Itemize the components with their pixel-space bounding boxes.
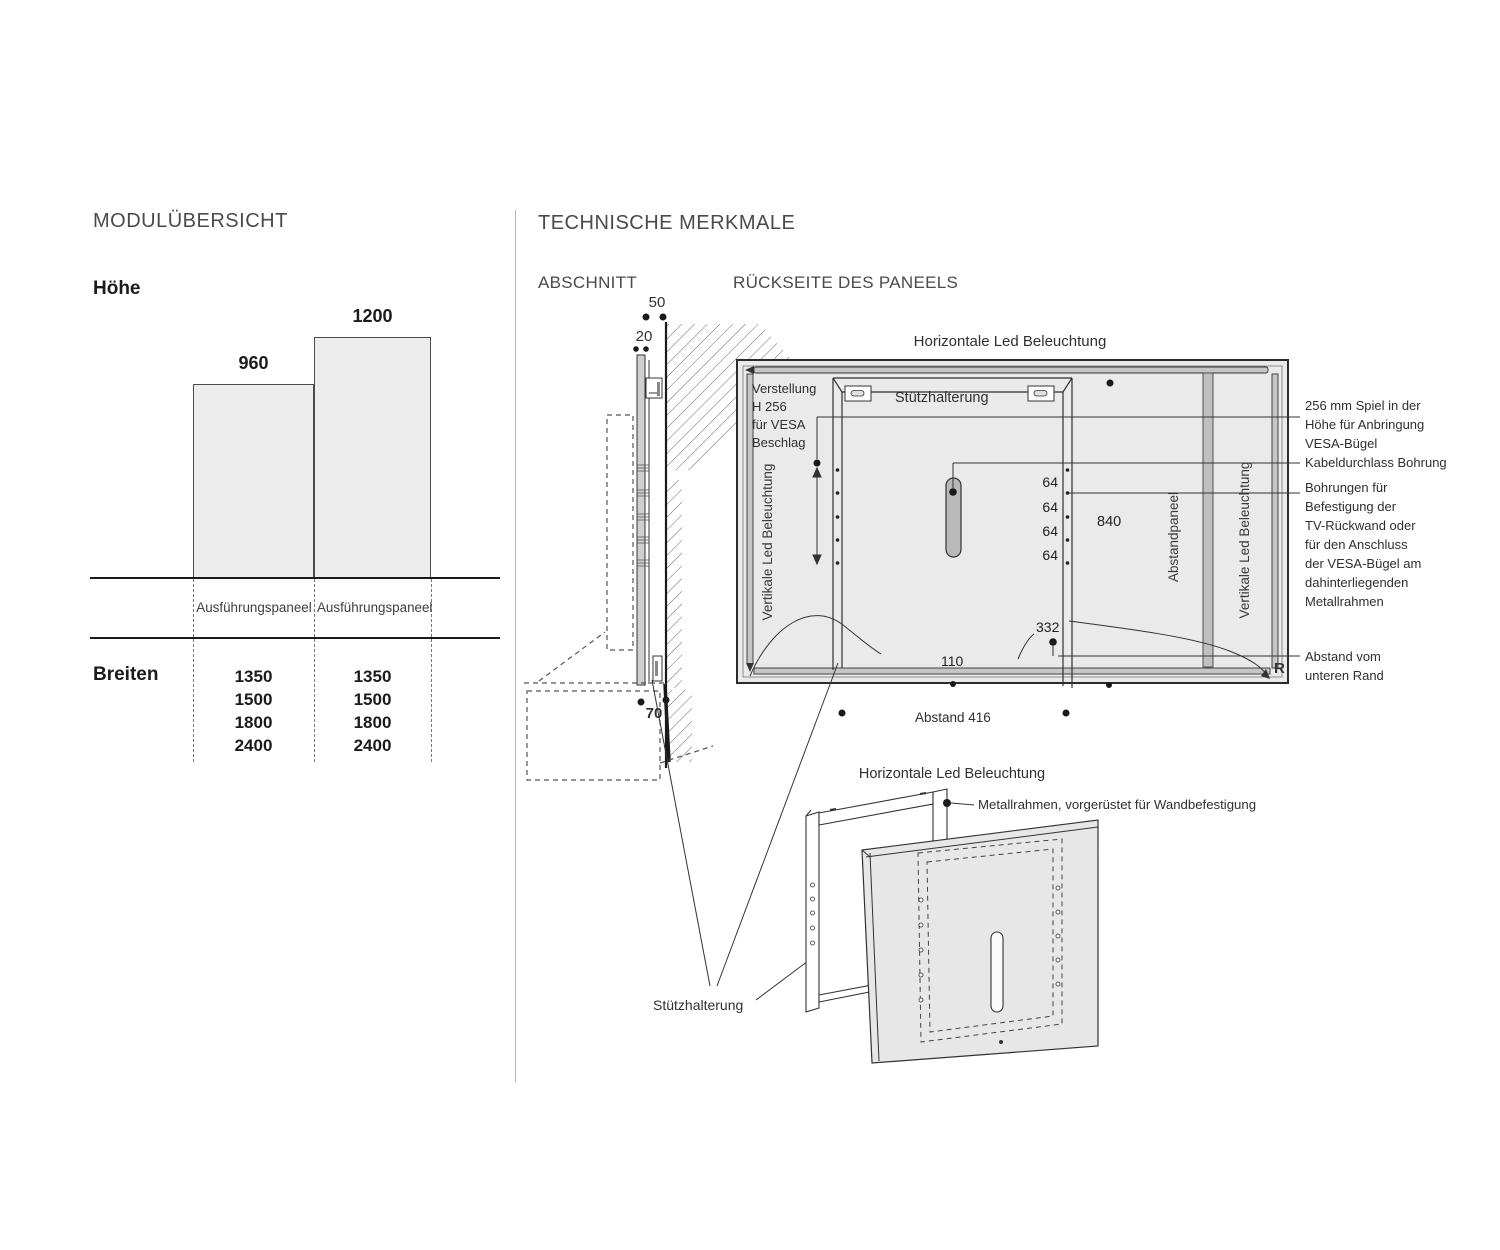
page: MODULÜBERSICHT Höhe 960 1200 Ausführungs… <box>0 0 1500 1250</box>
hole-gap-dim: 64 <box>1042 499 1058 515</box>
height-bar-small <box>193 384 314 578</box>
top-led-label: Horizontale Led Beleuchtung <box>914 333 1107 350</box>
left-led-label: Vertikale Led Beleuchtung <box>760 464 775 621</box>
annotation-line: unteren Rand <box>1305 668 1384 683</box>
vesa-line: Verstellung <box>752 381 816 396</box>
width-value: 1800 <box>354 711 392 734</box>
spacer-label: Abstandpaneel <box>1166 492 1181 582</box>
rear-view-title: RÜCKSEITE DES PANEELS <box>733 273 958 292</box>
bar-small-value: 960 <box>193 353 314 374</box>
bar-large-value: 1200 <box>314 306 431 327</box>
cable-hole-annotation: Kabeldurchlass Bohrung <box>1305 455 1447 470</box>
height-label: Höhe <box>93 278 141 300</box>
exploded-title: Horizontale Led Beleuchtung <box>859 766 1045 782</box>
widths-col-1: 1350 1500 1800 2400 <box>193 665 314 757</box>
technical-drawing: TECHNISCHE MERKMALE ABSCHNITT RÜCKSEITE … <box>510 200 1500 1100</box>
widths-label: Breiten <box>93 664 158 686</box>
panel-slab <box>862 820 1098 1063</box>
annotation-line: VESA-Bügel <box>1305 436 1377 451</box>
vesa-line: Beschlag <box>752 435 805 450</box>
baseline <box>90 577 500 579</box>
annotation-line: dahinterliegenden <box>1305 575 1408 590</box>
right-led-bar <box>1272 374 1278 668</box>
slab-cable-slot <box>991 932 1003 1012</box>
rear-view: Horizontale Led Beleuchtung <box>737 333 1300 725</box>
exploded-support-label: Stützhalterung <box>653 997 743 1013</box>
tv-outline-dashed <box>607 415 633 650</box>
led-inset-dim: 110 <box>941 653 964 669</box>
wall-hatch-mid <box>667 480 682 688</box>
width-value: 1350 <box>235 665 273 688</box>
right-led-label: Vertikale Led Beleuchtung <box>1237 462 1252 619</box>
panel-col2-header: Ausführungspaneel <box>317 600 430 615</box>
bottom-offset-dim: 332 <box>1036 619 1060 635</box>
vesa-line: für VESA <box>752 417 806 432</box>
annotation-line: für den Anschluss <box>1305 537 1408 552</box>
spacing-label: Abstand 416 <box>915 710 991 725</box>
widths-col-2: 1350 1500 1800 2400 <box>314 665 431 757</box>
technical-title: TECHNISCHE MERKMALE <box>538 212 795 234</box>
annotation-line: Höhe für Anbringung <box>1305 417 1424 432</box>
top-led-bar <box>754 367 1268 373</box>
module-overview-title: MODULÜBERSICHT <box>93 210 288 233</box>
corner-label: R <box>1274 660 1285 677</box>
table-divider <box>90 637 500 639</box>
hole-gap-dim: 64 <box>1042 474 1058 490</box>
height-bar-large <box>314 337 431 578</box>
vesa-line: H 256 <box>752 399 787 414</box>
annotation-line: TV-Rückwand oder <box>1305 518 1416 533</box>
annotation-line: Befestigung der <box>1305 499 1397 514</box>
annotation-line: 256 mm Spiel in der <box>1305 398 1421 413</box>
annotation-line: Bohrungen für <box>1305 480 1388 495</box>
hole-gap-dim: 64 <box>1042 547 1058 563</box>
section-view-title: ABSCHNITT <box>538 273 637 292</box>
frame-annotation: Metallrahmen, vorgerüstet für Wandbefest… <box>978 797 1256 812</box>
bottom-led-bar <box>754 668 1270 674</box>
annotations: 256 mm Spiel in der Höhe für Anbringung … <box>1305 398 1447 683</box>
width-value: 1350 <box>354 665 392 688</box>
wall-hatch-bottom <box>668 690 692 762</box>
annotation-line: Abstand vom <box>1305 649 1381 664</box>
width-value: 2400 <box>235 734 273 757</box>
width-value: 1500 <box>235 688 273 711</box>
annotation-line: der VESA-Bügel am <box>1305 556 1421 571</box>
support-label: Stützhalterung <box>895 390 989 406</box>
section-dim-top: 50 <box>649 294 666 311</box>
width-value: 2400 <box>354 734 392 757</box>
panel-col1-header: Ausführungspaneel <box>196 600 312 615</box>
inner-height-dim: 840 <box>1097 514 1121 530</box>
section-dim-gap: 20 <box>636 328 653 345</box>
annotation-line: Metallrahmen <box>1305 594 1384 609</box>
width-value: 1800 <box>235 711 273 734</box>
hole-gap-dim: 64 <box>1042 523 1058 539</box>
width-value: 1500 <box>354 688 392 711</box>
